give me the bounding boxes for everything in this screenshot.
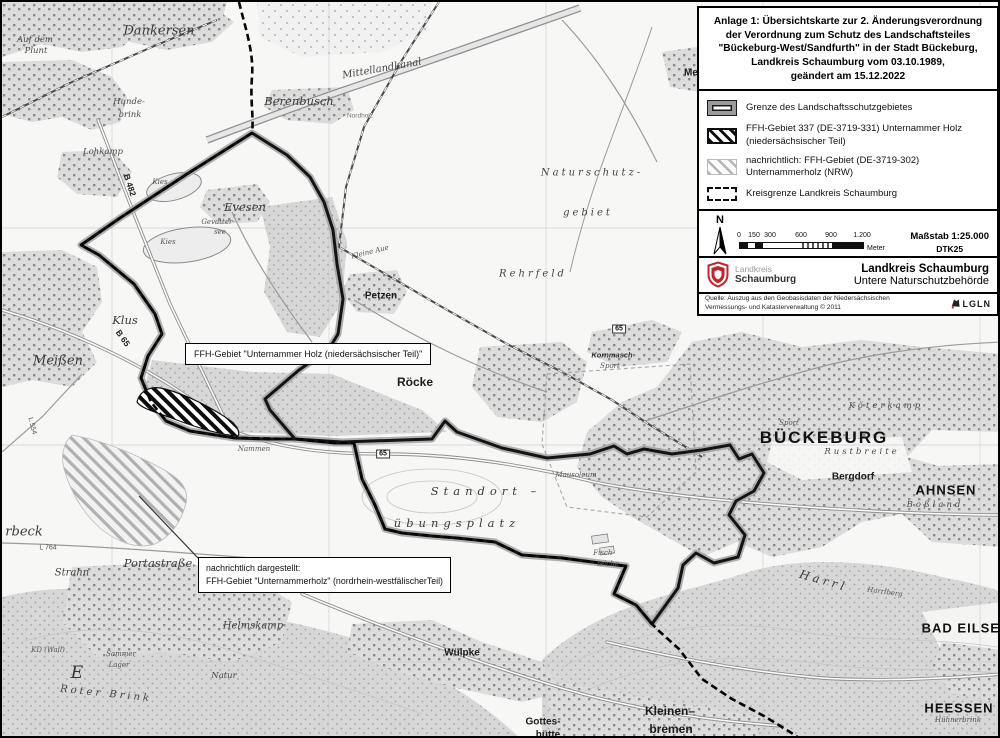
basemap-name: DTK25 [910,244,989,254]
legend-item-ffh-nds: FFH-Gebiet 337 (DE-3719-331) Unternammer… [707,123,989,148]
scale-tick: 300 [764,232,776,239]
legend-label: Grenze des Landschaftsschutzgebietes [746,102,912,114]
title-line: Anlage 1: Übersichtskarte zur 2. Änderun… [703,15,993,29]
legend-label: Kreisgrenze Landkreis Schaumburg [746,188,897,200]
agency-name: Landkreis Schaumburg [854,263,989,275]
source-note: Quelle: Auszug aus den Geobasisdaten der… [705,295,927,313]
callout-ffh-nrw-line1: nachrichtlich dargestellt: [206,562,443,575]
legend-swatch-ffh-hatch [707,128,737,144]
scale-tick: 1.200 [853,232,871,239]
callout-ffh-nrw-line2: FFH-Gebiet "Unternammerholz" (nordrhein-… [206,575,443,588]
legend-swatch-lsg-boundary [707,100,737,116]
scale-section: N 0 150 300 600 900 1.200 [697,209,999,258]
lgln-icon [950,298,961,309]
callout-ffh-nds: FFH-Gebiet "Unternammer Holz (niedersäch… [185,343,431,365]
map-marginalia-panel: Anlage 1: Übersichtskarte zur 2. Änderun… [697,8,999,316]
source-section: Quelle: Auszug aus den Geobasisdaten der… [697,292,999,316]
legend-item-kreisgrenze: Kreisgrenze Landkreis Schaumburg [707,187,989,201]
agency-department: Untere Naturschutzbehörde [854,275,989,287]
legend: Grenze des Landschaftsschutzgebietes FFH… [697,89,999,210]
north-label: N [711,214,729,226]
title-line: Landkreis Schaumburg vom 03.10.1989, [703,56,993,70]
map-document: DankersenAuf demPluntHunde-brinkBerenbus… [0,0,1000,738]
scale-tick: 150 [748,232,760,239]
legend-item-ffh-nrw: nachrichtlich: FFH-Gebiet (DE-3719-302) … [707,155,989,180]
scale-tick: 0 [737,232,741,239]
title-line: geändert am 15.12.2022 [703,70,993,84]
schaumburg-shield-icon [707,261,729,288]
legend-label: FFH-Gebiet 337 (DE-3719-331) Unternammer… [746,123,989,148]
legend-item-lsg: Grenze des Landschaftsschutzgebietes [707,100,989,116]
legend-label: nachrichtlich: FFH-Gebiet (DE-3719-302) … [746,155,989,180]
title-line: "Bückeburg-West/Sandfurth" in der Stadt … [703,42,993,56]
north-arrow-icon [712,226,728,256]
agency-name-block: Landkreis Schaumburg Untere Naturschutzb… [854,263,989,287]
title-block: Anlage 1: Übersichtskarte zur 2. Änderun… [697,6,999,91]
scale-tick: 900 [825,232,837,239]
legend-swatch-kreisgrenze [707,187,737,201]
logo-text-landkreis: Landkreis [735,264,796,274]
callout-ffh-nrw: nachrichtlich dargestellt: FFH-Gebiet "U… [198,557,451,593]
scale-tick: 600 [795,232,807,239]
agency-section: Landkreis Schaumburg Landkreis Schaumbur… [697,256,999,294]
scale-text: Maßstab 1:25.000 DTK25 [910,231,989,254]
callout-ffh-nds-text: FFH-Gebiet "Unternammer Holz (niedersäch… [194,349,422,359]
legend-swatch-nrw-hatch [707,159,737,175]
north-arrow: N [711,214,729,261]
scale-unit: Meter [867,245,885,252]
scale-bar-segments [739,242,864,249]
lgln-logo: LGLN [950,298,992,309]
scale-ratio: Maßstab 1:25.000 [910,231,989,242]
logo-text-schaumburg: Schaumburg [735,274,796,285]
title-line: der Verordnung zum Schutz des Landschaft… [703,29,993,43]
scale-bar: 0 150 300 600 900 1.200 Meter [739,232,909,254]
agency-logo-block: Landkreis Schaumburg [707,261,796,288]
lgln-text: LGLN [963,299,992,309]
